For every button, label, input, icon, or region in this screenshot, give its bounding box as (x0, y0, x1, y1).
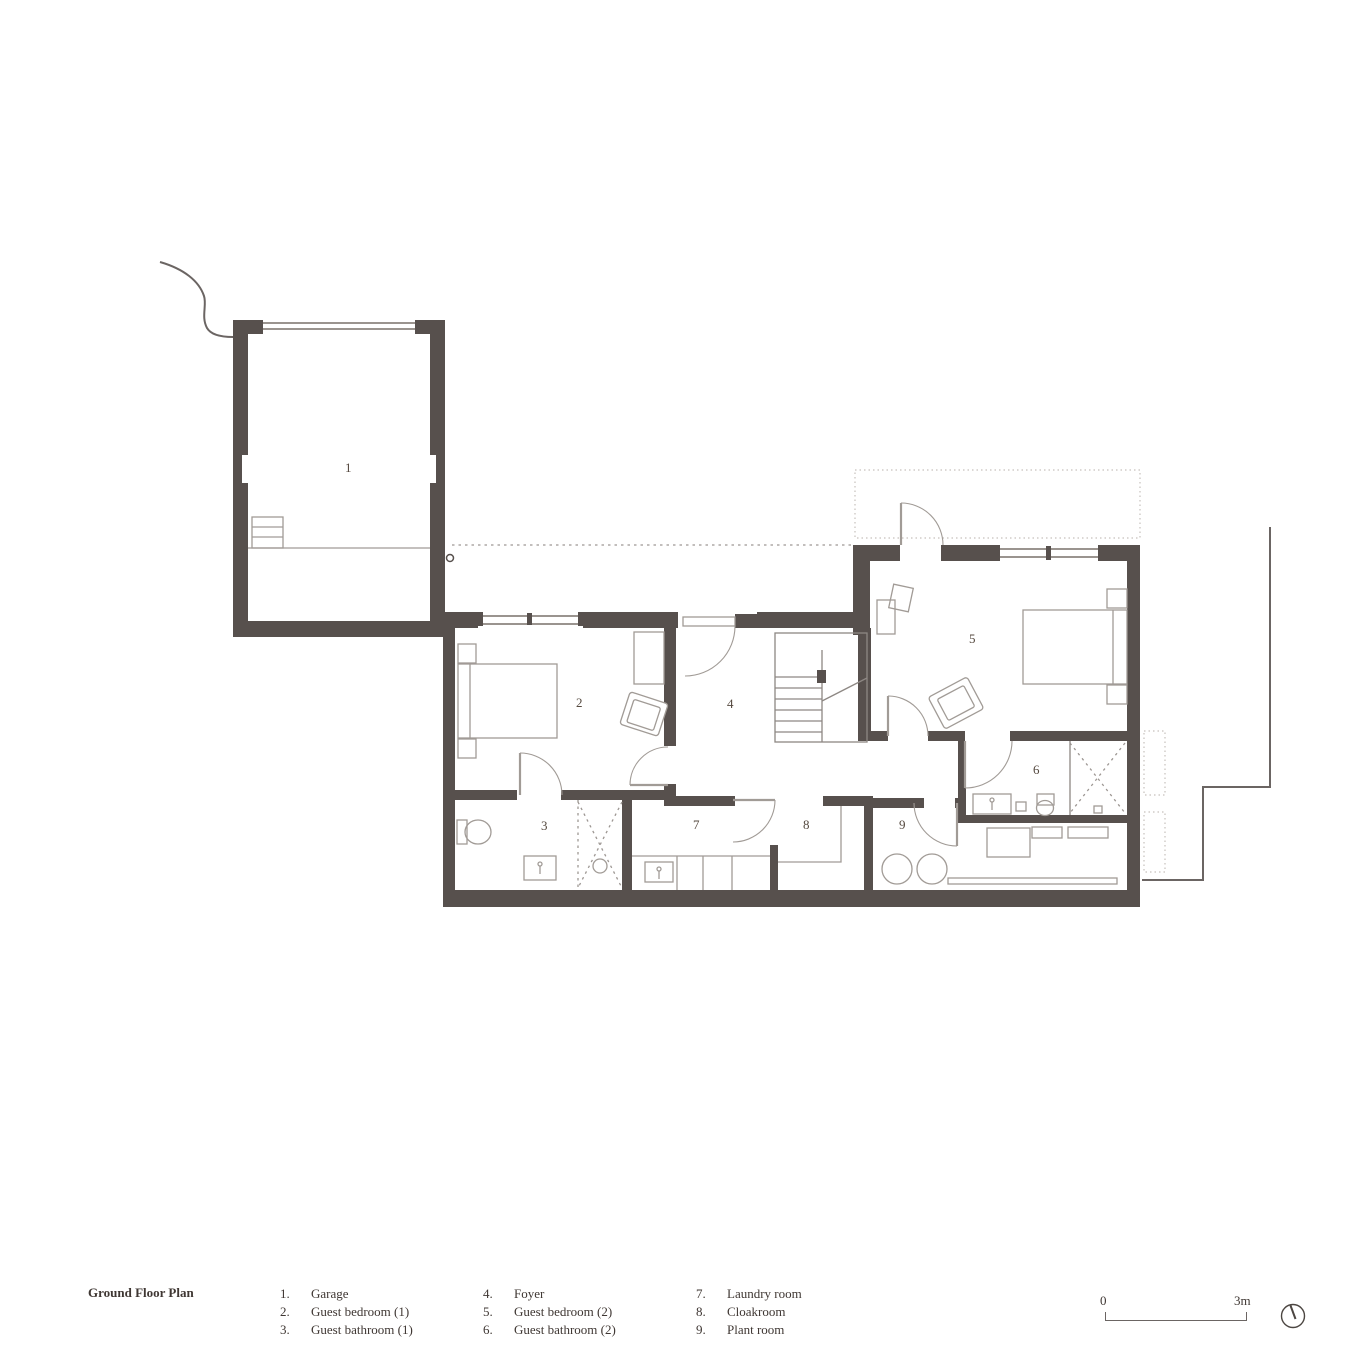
laundry-counter (632, 856, 770, 890)
room-number-garage: 1 (345, 460, 352, 475)
window-bedroom1 (478, 612, 583, 626)
hall-to-laundry-door (733, 800, 775, 842)
bathroom1-shower (578, 800, 622, 890)
scale-end-label: 3m (1234, 1293, 1251, 1309)
legend-item-number: 7. (696, 1285, 727, 1303)
bathroom1-sink (524, 856, 556, 880)
hall-to-bathroom2-door (965, 741, 1012, 788)
exterior-walls (443, 545, 1140, 907)
planter-dotted-outlines (1144, 731, 1165, 872)
bedroom2-armchair (928, 677, 984, 729)
legend-item-label: Plant room (727, 1321, 784, 1339)
hall-to-bedroom2-door (888, 696, 928, 736)
legend-item-label: Foyer (514, 1285, 544, 1303)
legend-item: 4.Foyer (483, 1285, 616, 1303)
bedroom1-wardrobe (634, 632, 664, 684)
foyer-to-bedroom1-door (630, 747, 668, 785)
north-arrow-icon (1278, 1301, 1308, 1331)
legend-item-label: Guest bedroom (1) (311, 1303, 409, 1321)
legend-item-number: 3. (280, 1321, 311, 1339)
staircase (775, 633, 867, 742)
bedroom2-exterior-door (901, 503, 943, 545)
garage-door-panel (263, 323, 415, 329)
room-number-guest-bathroom-1: 3 (541, 818, 548, 833)
legend-item: 7.Laundry room (696, 1285, 802, 1303)
legend-item-number: 2. (280, 1303, 311, 1321)
legend-item: 6.Guest bathroom (2) (483, 1321, 616, 1339)
legend-item: 2.Guest bedroom (1) (280, 1303, 413, 1321)
legend-column-2: 4.Foyer 5.Guest bedroom (2) 6.Guest bath… (483, 1285, 616, 1339)
bedroom2-bed (1023, 589, 1127, 704)
scale-bar (1105, 1312, 1247, 1321)
bathroom2-toilet (1037, 794, 1055, 816)
cloakroom-counter (778, 806, 841, 862)
canopy-dotted-outline (855, 470, 1140, 538)
terrace-outline (1142, 527, 1270, 880)
entrance-door (683, 617, 735, 676)
legend-item-number: 8. (696, 1303, 727, 1321)
hall-to-plantroom-door (914, 803, 957, 846)
floor-plan-drawing: 1 2 3 4 5 6 7 8 9 (0, 0, 1368, 1368)
legend-item-label: Laundry room (727, 1285, 802, 1303)
legend-item-number: 6. (483, 1321, 514, 1339)
legend-item-label: Guest bathroom (1) (311, 1321, 413, 1339)
room-number-guest-bedroom-1: 2 (576, 695, 583, 710)
legend-column-3: 7.Laundry room 8.Cloakroom 9.Plant room (696, 1285, 802, 1339)
survey-marker (447, 555, 454, 562)
legend-item-label: Guest bedroom (2) (514, 1303, 612, 1321)
bedroom2-desk (877, 584, 913, 634)
room-number-cloakroom: 8 (803, 817, 810, 832)
legend-item: 1.Garage (280, 1285, 413, 1303)
site-boundary-line (160, 262, 233, 337)
bathroom1-toilet (457, 820, 491, 844)
bedroom1-to-bathroom1-door (520, 753, 562, 795)
bathroom2-sink (973, 794, 1026, 814)
interior-walls (455, 628, 1127, 893)
room-number-laundry: 7 (693, 817, 700, 832)
room-number-foyer: 4 (727, 696, 734, 711)
bathroom2-shower (1070, 741, 1125, 815)
legend-column-1: 1.Garage 2.Guest bedroom (1) 3.Guest bat… (280, 1285, 413, 1339)
legend-item-number: 1. (280, 1285, 311, 1303)
plantroom-equipment (882, 827, 1117, 884)
legend-item-label: Cloakroom (727, 1303, 786, 1321)
legend-item-number: 5. (483, 1303, 514, 1321)
legend-item: 3.Guest bathroom (1) (280, 1321, 413, 1339)
legend-item: 5.Guest bedroom (2) (483, 1303, 616, 1321)
room-number-guest-bathroom-2: 6 (1033, 762, 1040, 777)
scale-start-label: 0 (1100, 1293, 1107, 1309)
legend-item-number: 9. (696, 1321, 727, 1339)
legend-item: 8.Cloakroom (696, 1303, 802, 1321)
legend-item-number: 4. (483, 1285, 514, 1303)
window-bedroom2 (1000, 546, 1098, 560)
legend-item: 9.Plant room (696, 1321, 802, 1339)
legend-item-label: Guest bathroom (2) (514, 1321, 616, 1339)
bedroom1-bed (458, 644, 557, 758)
room-number-guest-bedroom-2: 5 (969, 631, 976, 646)
floor-plan-sheet: 1 2 3 4 5 6 7 8 9 Ground Floor Plan 1.Ga… (0, 0, 1368, 1368)
garage-walls (233, 320, 455, 637)
legend-item-label: Garage (311, 1285, 349, 1303)
room-number-plantroom: 9 (899, 817, 906, 832)
bedroom1-armchair (620, 692, 669, 737)
garage-steps (252, 517, 283, 548)
